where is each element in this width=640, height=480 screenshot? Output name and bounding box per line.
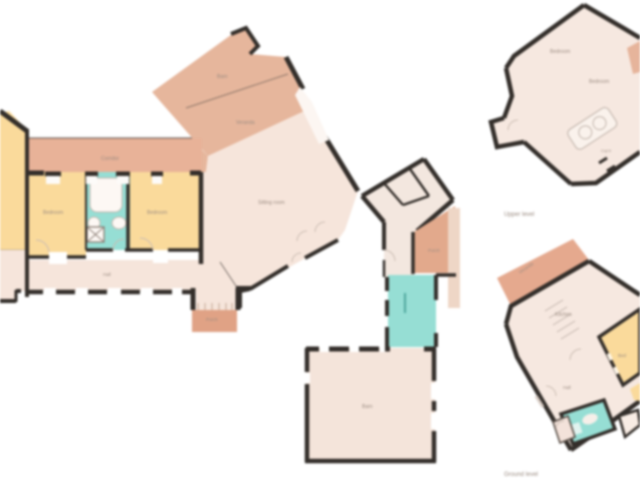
svg-text:Veranda: Veranda: [236, 120, 255, 126]
svg-text:Hall: Hall: [563, 385, 571, 390]
svg-text:Hall: Hall: [103, 272, 111, 277]
svg-text:Bedroom: Bedroom: [43, 210, 63, 216]
svg-text:Bed: Bed: [618, 353, 627, 358]
svg-text:Sitting room: Sitting room: [258, 200, 285, 206]
svg-text:Bedroom: Bedroom: [589, 79, 609, 85]
svg-text:Bedroom: Bedroom: [550, 49, 570, 55]
svg-text:Upper level: Upper level: [504, 212, 534, 218]
svg-text:Bedroom: Bedroom: [147, 210, 167, 216]
svg-text:Barn: Barn: [362, 404, 373, 410]
svg-text:Porch: Porch: [428, 248, 440, 253]
svg-text:Kitchen: Kitchen: [555, 312, 572, 318]
svg-text:Barn: Barn: [217, 74, 228, 80]
svg-text:Ground level: Ground level: [504, 472, 538, 478]
svg-text:Cup'd: Cup'd: [601, 149, 611, 153]
svg-text:Corridor: Corridor: [101, 156, 119, 162]
svg-text:Porch: Porch: [206, 317, 218, 322]
